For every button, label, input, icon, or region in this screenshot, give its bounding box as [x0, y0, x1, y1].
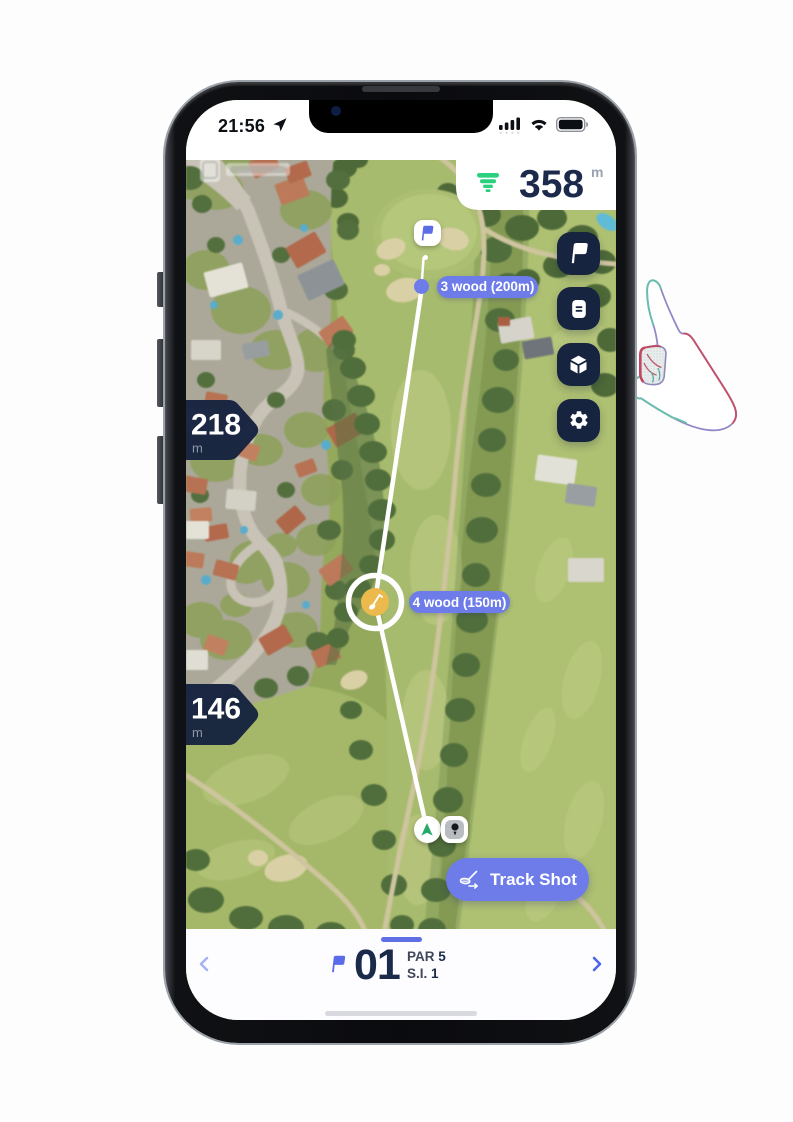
svg-text:m: m: [192, 725, 203, 740]
svg-text:m: m: [192, 441, 203, 456]
svg-text:218: 218: [191, 409, 241, 442]
svg-text:146: 146: [191, 693, 241, 726]
